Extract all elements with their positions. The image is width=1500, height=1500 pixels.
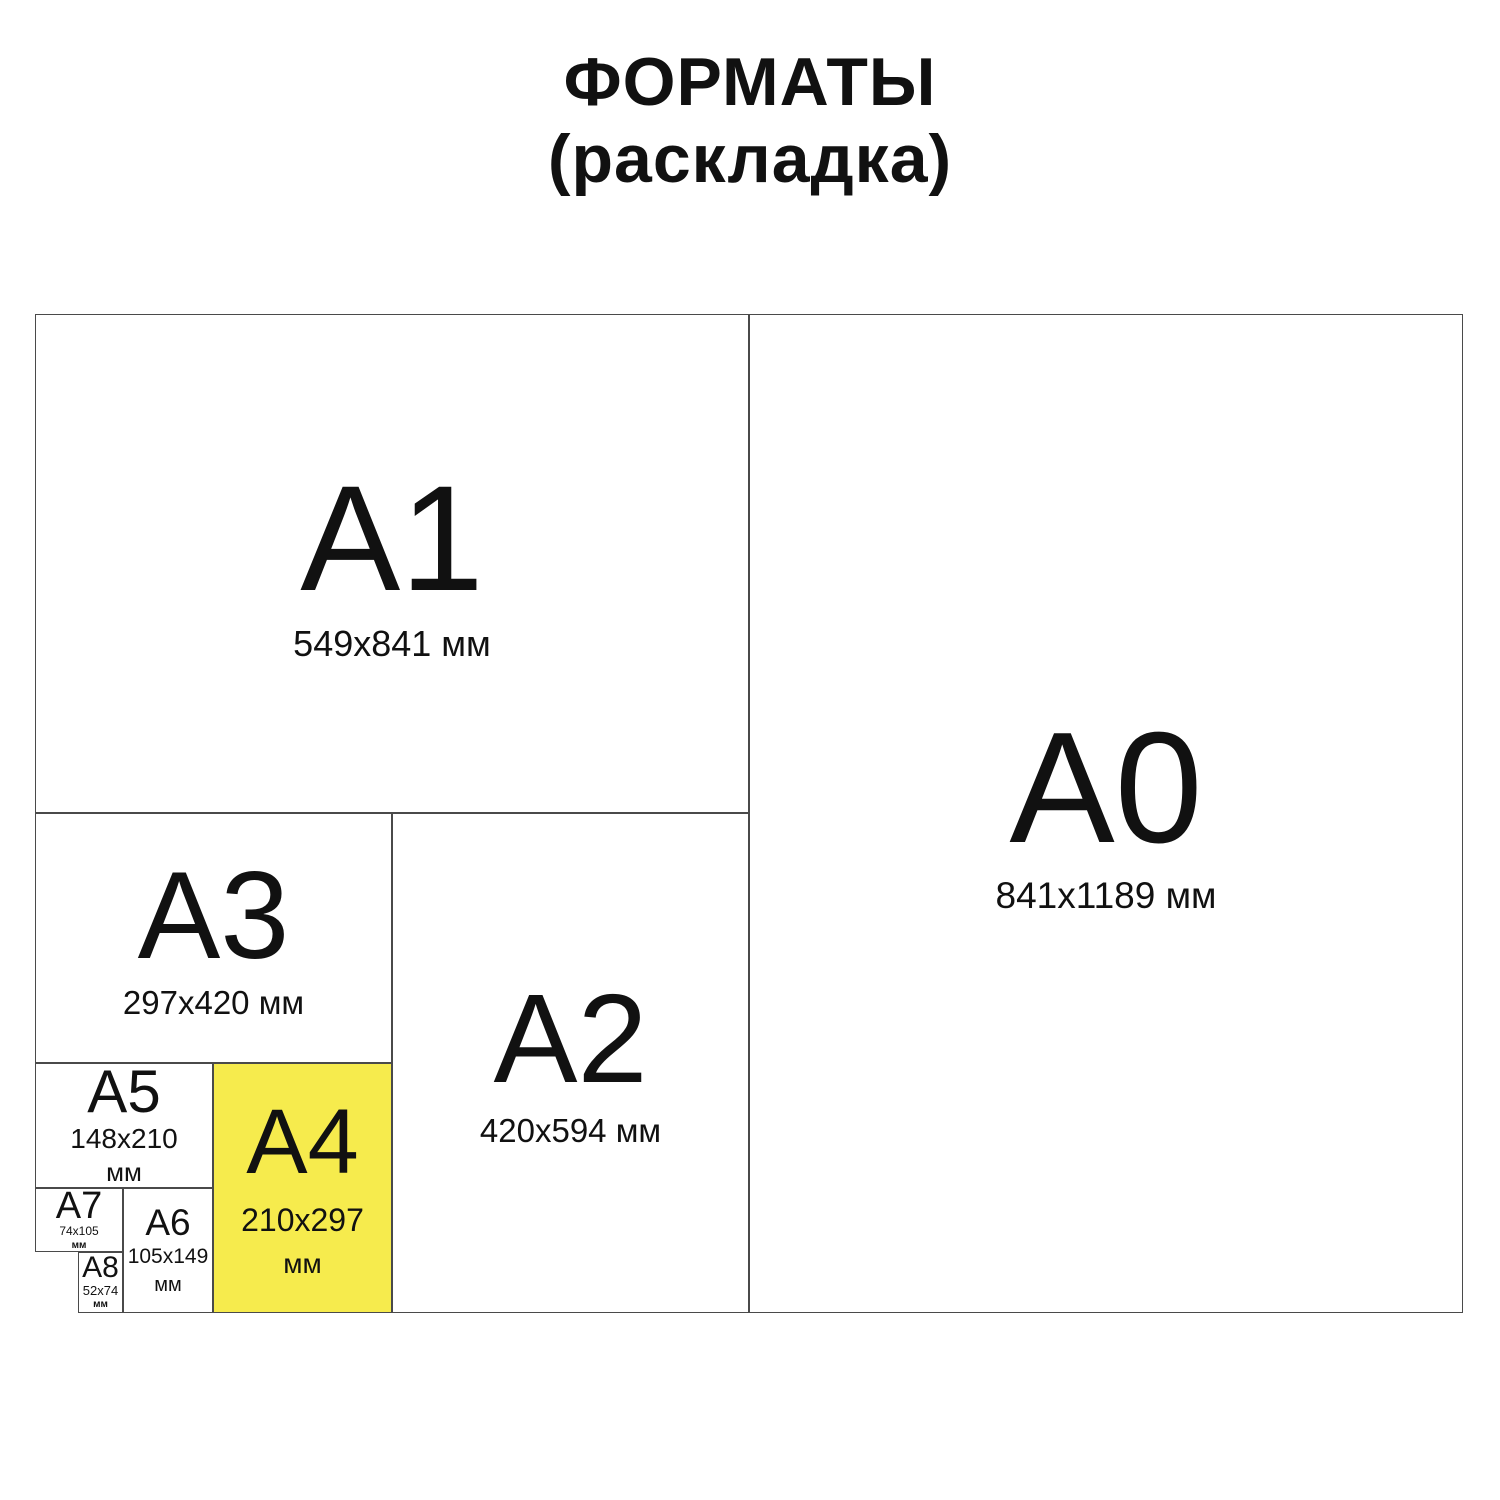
format-a7-label: A7: [56, 1189, 102, 1223]
format-box-a3: A3 297x420 мм: [35, 813, 392, 1063]
format-box-a0: A0 841x1189 мм: [749, 314, 1463, 1313]
format-a6-size: 105x149: [128, 1245, 209, 1269]
format-a6-size-unit: мм: [154, 1274, 182, 1297]
format-a2-size: 420x594 мм: [480, 1112, 661, 1150]
format-box-a5: A5 148x210 мм: [35, 1063, 213, 1188]
format-a4-size-unit: мм: [283, 1248, 322, 1280]
format-box-a7: A7 74x105 мм: [35, 1188, 123, 1252]
format-a1-size: 549x841 мм: [293, 623, 491, 664]
page: ФОРМАТЫ (раскладка) A1 549x841 мм A0 841…: [0, 0, 1500, 1500]
format-a8-size: 52x74: [83, 1284, 118, 1299]
paper-formats-diagram: A1 549x841 мм A0 841x1189 мм A3 297x420 …: [35, 314, 1463, 1313]
format-a0-label: A0: [1009, 709, 1202, 867]
format-a6-label: A6: [145, 1204, 190, 1241]
title-line-1: ФОРМАТЫ: [0, 44, 1500, 121]
format-box-a6: A6 105x149 мм: [123, 1188, 213, 1313]
format-box-a2: A2 420x594 мм: [392, 813, 749, 1313]
format-a5-label: A5: [87, 1063, 160, 1120]
format-a8-label: A8: [82, 1254, 119, 1283]
format-a5-size-unit: мм: [106, 1158, 142, 1188]
page-title: ФОРМАТЫ (раскладка): [0, 44, 1500, 198]
format-a3-label: A3: [138, 854, 290, 978]
format-box-a1: A1 549x841 мм: [35, 314, 749, 813]
format-a0-size: 841x1189 мм: [996, 875, 1217, 918]
format-a4-size: 210x297: [241, 1202, 364, 1239]
format-a4-label: A4: [246, 1096, 359, 1188]
format-a7-size-unit: мм: [72, 1240, 87, 1252]
format-a7-size: 74x105: [59, 1225, 98, 1239]
format-a2-label: A2: [493, 976, 647, 1102]
format-box-a8: A8 52x74 мм: [78, 1252, 123, 1313]
format-box-a4-highlighted: A4 210x297 мм: [213, 1063, 392, 1313]
title-line-2: (раскладка): [0, 121, 1500, 198]
format-a3-size: 297x420 мм: [123, 984, 304, 1022]
format-a5-size: 148x210: [70, 1123, 177, 1155]
format-a1-label: A1: [300, 463, 483, 613]
format-a8-size-unit: мм: [93, 1299, 108, 1311]
